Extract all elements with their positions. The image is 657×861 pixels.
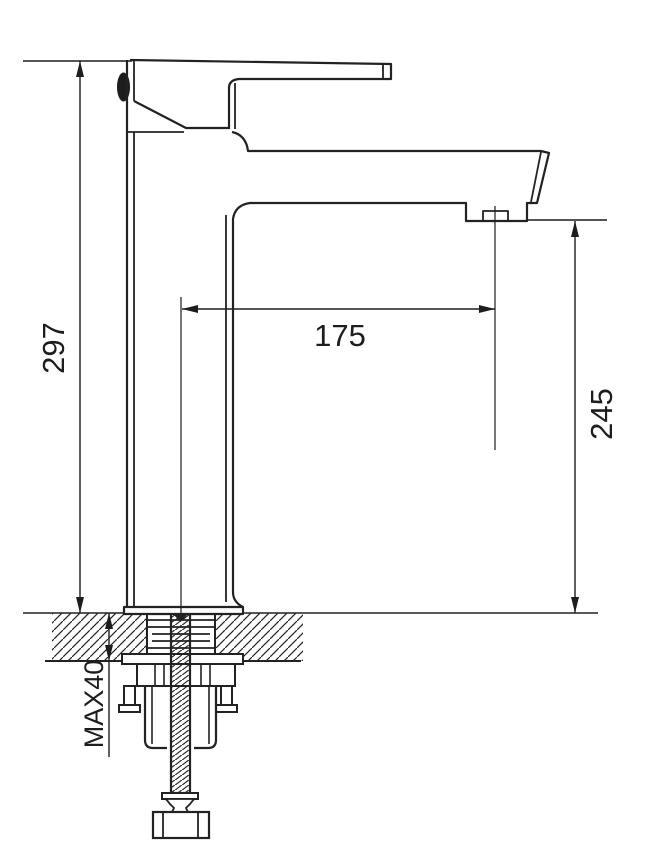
faucet-dimension-drawing: 297 175 245 MAX40	[0, 0, 657, 861]
threaded-rod	[171, 613, 190, 793]
dim-max40-label: MAX40	[79, 660, 109, 749]
rod-cone-spacer	[166, 799, 194, 812]
mounting-bolt-left	[119, 686, 140, 712]
adjustment-knob	[153, 812, 209, 838]
dimension-labels: 297 175 245 MAX40	[36, 318, 619, 748]
arrow-245-bottom	[571, 597, 579, 613]
handle-base-slope	[134, 101, 229, 128]
arrow-245-top	[571, 221, 579, 237]
spout-outline	[232, 132, 549, 607]
base-plate	[124, 607, 243, 614]
arrow-297-top	[76, 61, 84, 77]
arrow-297-bottom	[76, 597, 84, 613]
dim-175-label: 175	[314, 318, 366, 353]
dim-297-label: 297	[36, 322, 71, 374]
arrow-175-left	[182, 305, 198, 313]
dim-245-label: 245	[584, 388, 619, 440]
technical-drawing-page: 297 175 245 MAX40	[0, 0, 657, 861]
arrow-175-right	[479, 305, 495, 313]
mounting-bolt-right	[216, 686, 237, 712]
